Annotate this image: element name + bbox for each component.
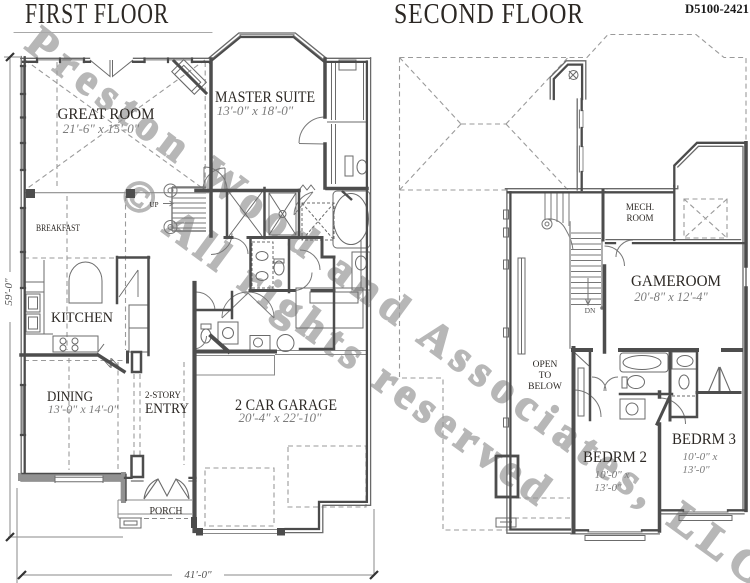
svg-text:PORCH: PORCH [150,506,183,517]
svg-text:20'-8" x 12'-4": 20'-8" x 12'-4" [634,290,708,304]
svg-text:20'-4" x 22'-10": 20'-4" x 22'-10" [239,410,322,425]
svg-text:UP: UP [150,201,159,209]
svg-text:BEDRM 3: BEDRM 3 [672,431,736,448]
svg-text:10'-0" x: 10'-0" x [595,469,630,481]
svg-text:BELOW: BELOW [528,382,562,392]
svg-text:GAMEROOM: GAMEROOM [631,273,721,290]
svg-text:2-STORY: 2-STORY [145,390,181,400]
svg-text:BEDRM 2: BEDRM 2 [583,449,647,466]
svg-text:OPEN: OPEN [533,360,558,370]
svg-text:DN: DN [585,306,596,315]
svg-text:59'-0": 59'-0" [3,278,15,306]
svg-text:TO: TO [539,371,552,381]
svg-text:13'-0": 13'-0" [682,464,710,476]
svg-text:© All rights reserved: © All rights reserved [111,167,559,514]
svg-text:41'-0": 41'-0" [184,569,212,581]
svg-text:D5100-2421: D5100-2421 [685,2,749,16]
svg-text:13'-0": 13'-0" [594,482,622,494]
svg-text:FIRST FLOOR: FIRST FLOOR [25,0,169,30]
svg-text:SECOND FLOOR: SECOND FLOOR [394,0,584,30]
svg-text:21'-6" x 15'-0": 21'-6" x 15'-0" [63,121,140,136]
svg-text:KITCHEN: KITCHEN [51,310,113,326]
svg-text:MECH.: MECH. [626,202,654,212]
svg-text:BREAKFAST: BREAKFAST [36,224,80,234]
svg-text:13'-0" x 14'-0": 13'-0" x 14'-0" [48,402,119,416]
svg-text:13'-0" x 18'-0": 13'-0" x 18'-0" [217,103,294,118]
svg-text:ROOM: ROOM [626,213,653,223]
svg-text:10'-0" x: 10'-0" x [683,451,718,463]
svg-text:ENTRY: ENTRY [145,401,189,417]
